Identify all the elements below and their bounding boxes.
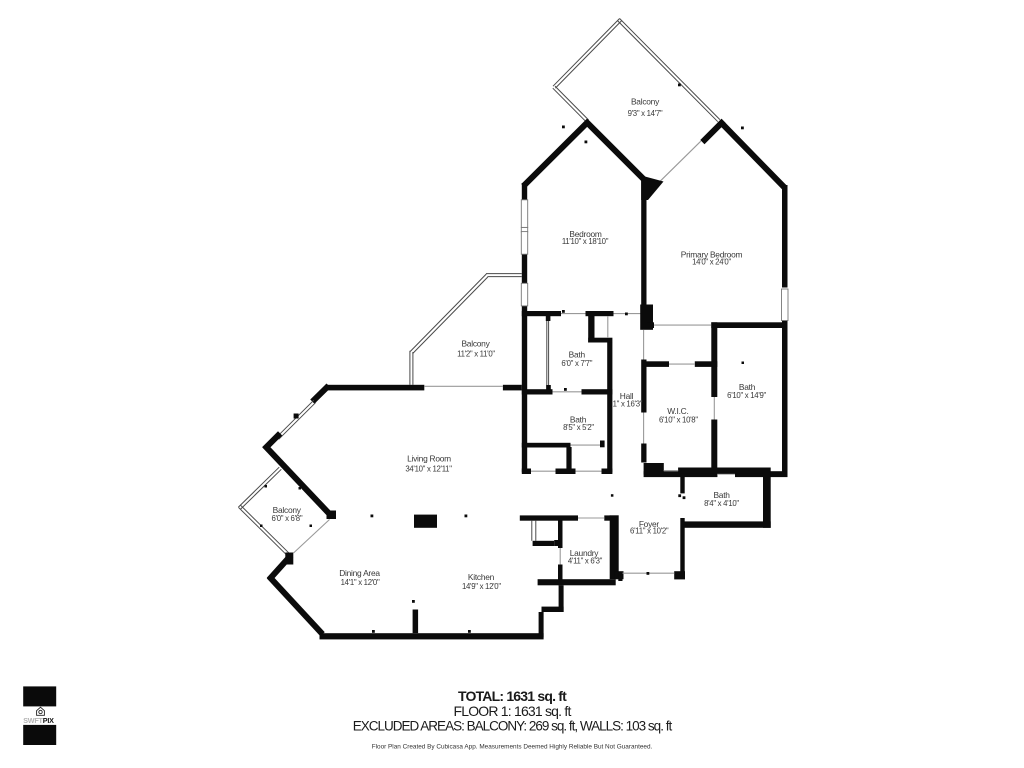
- svg-text:6'10" x 10'8": 6'10" x 10'8": [659, 416, 698, 425]
- svg-text:8'5" x 5'2": 8'5" x 5'2": [563, 423, 594, 432]
- svg-text:6'0" x 6'8": 6'0" x 6'8": [272, 514, 303, 523]
- svg-text:9'3" x 14'7": 9'3" x 14'7": [628, 109, 663, 118]
- svg-text:W.I.C.: W.I.C.: [667, 406, 688, 416]
- svg-text:Balcony: Balcony: [631, 97, 660, 107]
- svg-text:4'11" x 6'3": 4'11" x 6'3": [568, 556, 603, 565]
- svg-text:Dining Area: Dining Area: [339, 568, 380, 578]
- svg-text:14'0" x 24'0": 14'0" x 24'0": [692, 258, 731, 267]
- svg-text:14'1" x 12'0": 14'1" x 12'0": [341, 578, 380, 587]
- svg-text:Living Room: Living Room: [407, 454, 451, 464]
- svg-text:6'11" x 10'2": 6'11" x 10'2": [630, 527, 669, 536]
- svg-text:Floor Plan Created By Cubicasa: Floor Plan Created By Cubicasa App. Meas…: [372, 744, 653, 751]
- svg-text:SWFTPIX: SWFTPIX: [23, 716, 54, 725]
- svg-text:6'10" x 14'9": 6'10" x 14'9": [727, 391, 766, 400]
- svg-text:EXCLUDED AREAS: BALCONY: 269 s: EXCLUDED AREAS: BALCONY: 269 sq. ft, WAL…: [353, 718, 673, 733]
- svg-text:11'10" x 18'10": 11'10" x 18'10": [562, 237, 609, 246]
- svg-text:34'10" x 12'11": 34'10" x 12'11": [405, 464, 452, 473]
- svg-text:TOTAL: 1631 sq. ft: TOTAL: 1631 sq. ft: [458, 688, 567, 704]
- svg-text:FLOOR 1: 1631 sq. ft: FLOOR 1: 1631 sq. ft: [453, 703, 571, 719]
- svg-text:Balcony: Balcony: [461, 339, 490, 349]
- svg-text:Bath: Bath: [569, 349, 586, 359]
- svg-text:Kitchen: Kitchen: [468, 572, 495, 582]
- svg-text:1" x 16'3": 1" x 16'3": [613, 399, 643, 408]
- svg-text:14'9" x 12'0": 14'9" x 12'0": [462, 582, 501, 591]
- svg-text:11'2" x 11'0": 11'2" x 11'0": [457, 349, 495, 358]
- svg-text:6'0" x 7'7": 6'0" x 7'7": [561, 359, 592, 368]
- svg-text:8'4" x 4'10": 8'4" x 4'10": [704, 499, 739, 508]
